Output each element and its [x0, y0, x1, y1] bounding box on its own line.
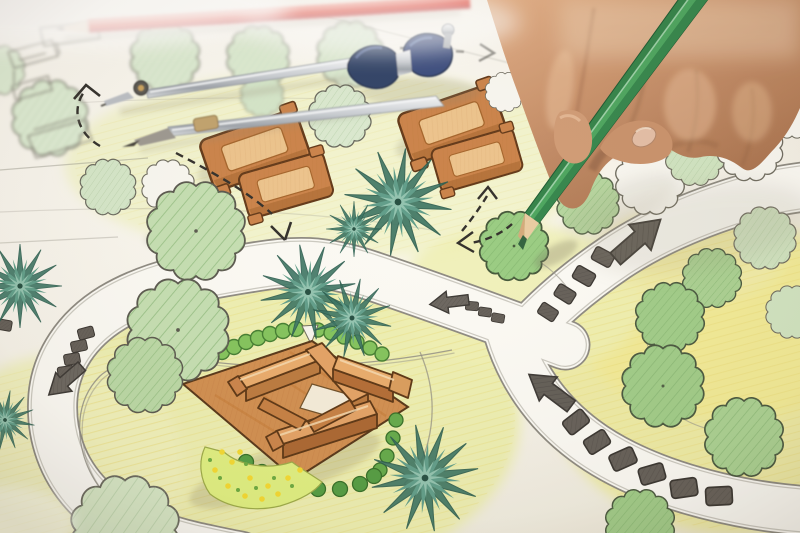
photo-lighting: [0, 0, 800, 533]
photograph: [0, 0, 800, 533]
